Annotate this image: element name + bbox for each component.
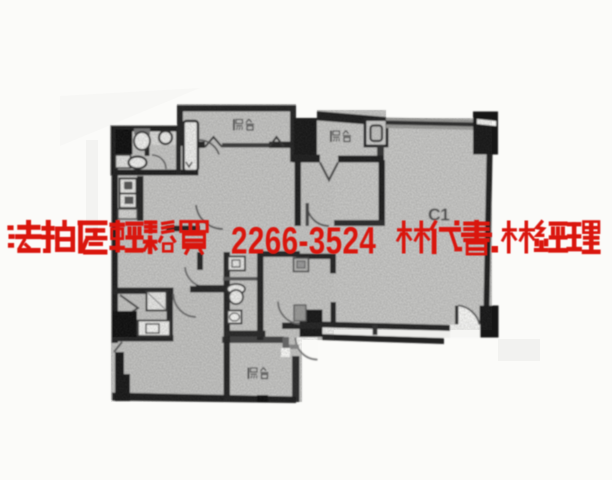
svg-text:2266-3524: 2266-3524 <box>231 220 376 262</box>
